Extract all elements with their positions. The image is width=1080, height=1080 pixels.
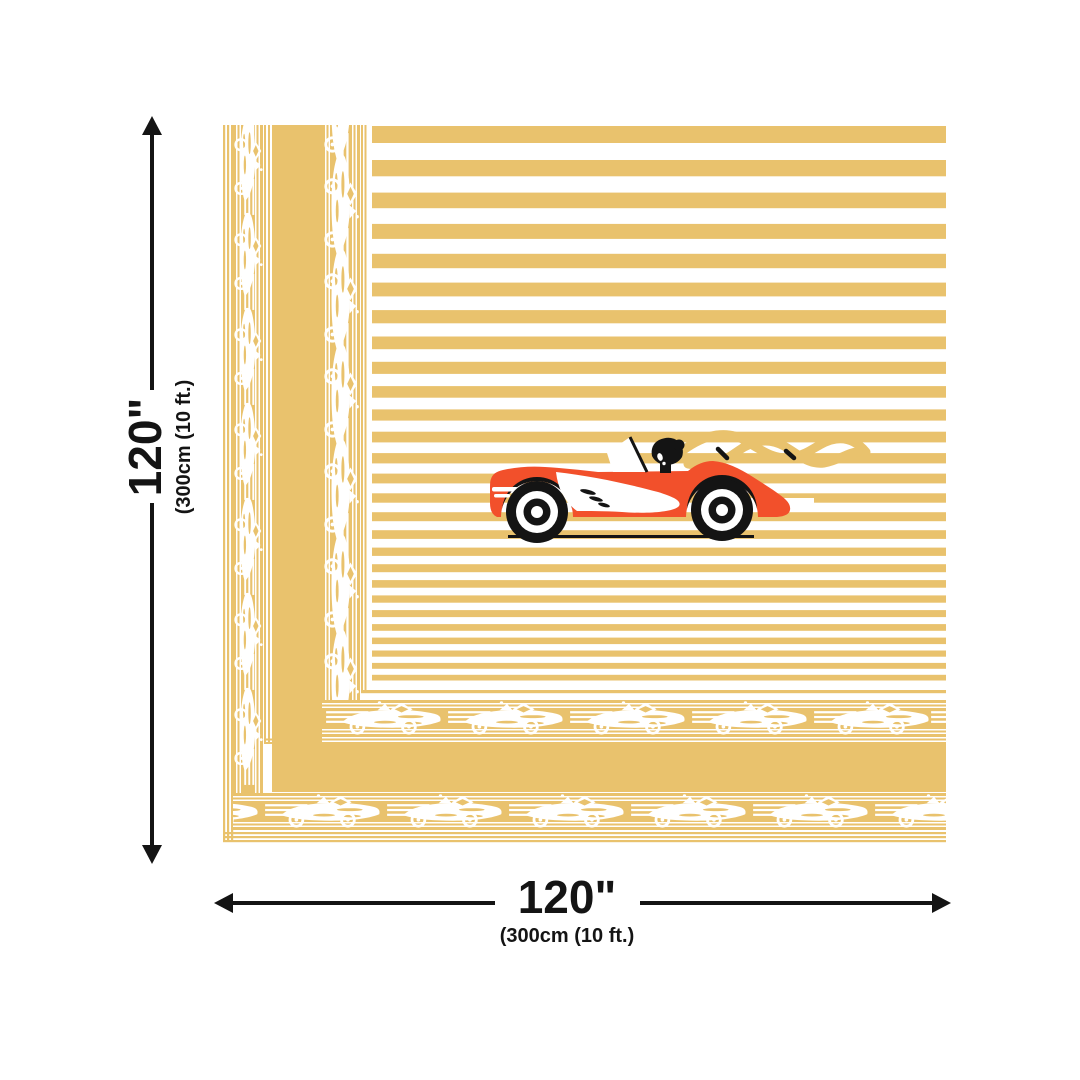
left-mid-pinstripes — [264, 125, 270, 744]
driver-silhouette — [652, 438, 685, 473]
bottom-outer-pinstripes — [223, 832, 946, 842]
bottom-mid-pinstripes — [264, 739, 946, 745]
height-metric: (300cm (10 ft.) — [173, 297, 195, 597]
rear-wheel — [691, 479, 753, 541]
bottom-outer-car-band — [143, 793, 989, 830]
width-value: 120" — [417, 874, 717, 920]
left-inner-pinstripes — [361, 125, 367, 690]
bottom-inner-car-band — [322, 700, 1046, 737]
front-wheel — [506, 481, 568, 543]
bottom-solid-band — [272, 744, 946, 792]
left-outer-car-column — [233, 41, 263, 793]
hero-car-illustration — [490, 435, 866, 547]
right-arrow-icon — [932, 893, 951, 913]
left-arrow-icon — [214, 893, 233, 913]
height-label: 120" (300cm (10 ft.) — [122, 297, 202, 597]
left-inner-car-column — [322, 59, 360, 747]
product-dimension-diagram: 120" (300cm (10 ft.) 120" (300cm (10 ft.… — [0, 0, 1080, 1080]
field-stripes — [372, 126, 946, 681]
down-arrow-icon — [142, 845, 162, 864]
width-label: 120" (300cm (10 ft.) — [417, 874, 717, 947]
front-chrome-slit — [492, 487, 518, 492]
width-metric: (300cm (10 ft.) — [417, 925, 717, 947]
left-solid-band — [272, 125, 322, 792]
up-arrow-icon — [142, 116, 162, 135]
left-outer-pinstripes — [223, 125, 233, 842]
front-chrome-slit — [494, 494, 510, 498]
bottom-field-rule — [361, 690, 946, 693]
height-value: 120" — [122, 297, 168, 597]
